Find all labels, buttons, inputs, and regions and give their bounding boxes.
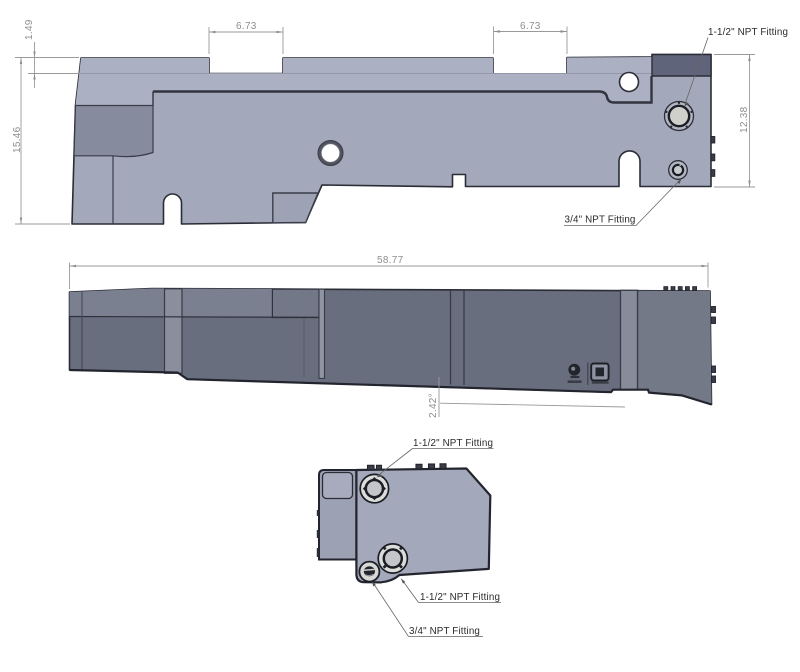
svg-text:6.73: 6.73 <box>520 21 541 32</box>
svg-text:3/4" NPT Fitting: 3/4" NPT Fitting <box>565 215 636 226</box>
svg-text:1-1/2" NPT Fitting: 1-1/2" NPT Fitting <box>413 438 493 449</box>
svg-text:58.77: 58.77 <box>377 255 404 266</box>
svg-text:15.46: 15.46 <box>12 126 23 153</box>
svg-text:6.73: 6.73 <box>236 21 257 32</box>
svg-text:1-1/2" NPT Fitting: 1-1/2" NPT Fitting <box>420 592 500 603</box>
svg-text:1-1/2" NPT Fitting: 1-1/2" NPT Fitting <box>708 27 788 38</box>
svg-text:12.38: 12.38 <box>739 106 750 133</box>
svg-text:2.42°: 2.42° <box>428 393 439 418</box>
svg-text:3/4" NPT Fitting: 3/4" NPT Fitting <box>409 626 480 637</box>
svg-text:1.49: 1.49 <box>24 19 35 40</box>
